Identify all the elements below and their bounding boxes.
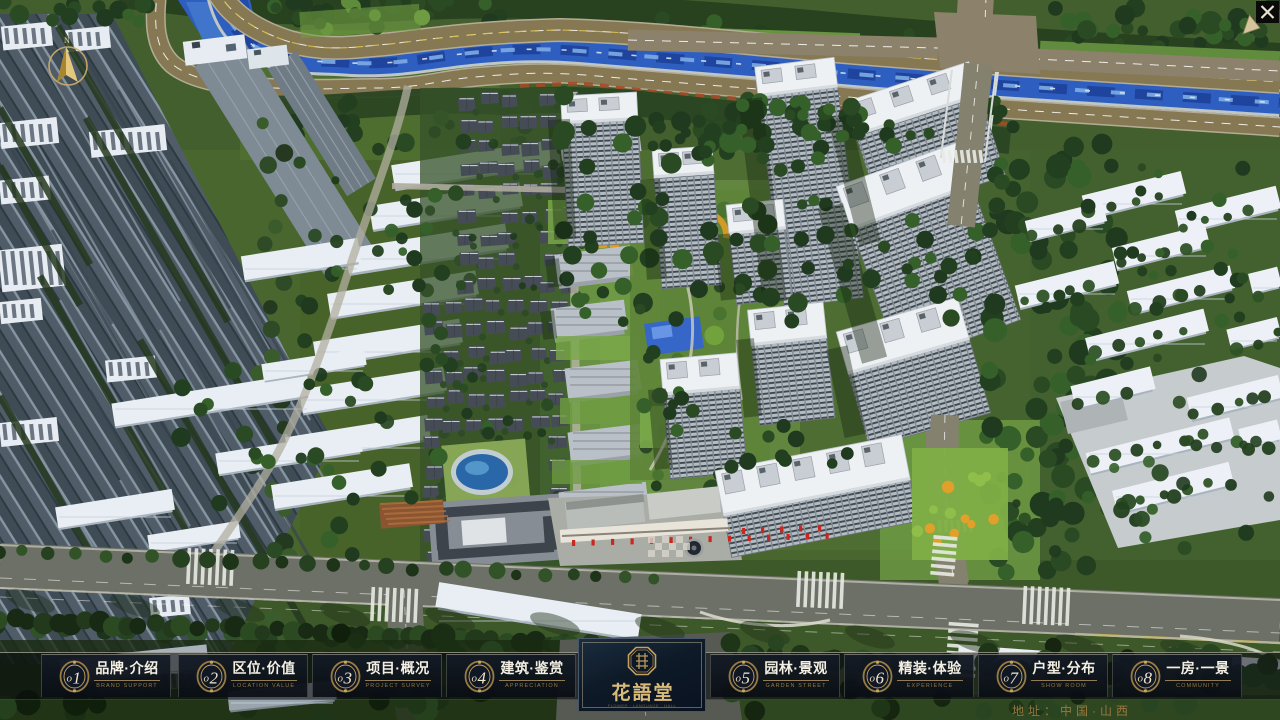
svg-text:8: 8 (1144, 669, 1153, 688)
svg-text:4: 4 (478, 669, 487, 688)
svg-text:2: 2 (210, 669, 219, 688)
svg-text:N: N (64, 36, 70, 45)
svg-text:5: 5 (742, 669, 751, 688)
svg-text:1: 1 (73, 669, 82, 688)
svg-text:6: 6 (876, 669, 885, 688)
svg-text:3: 3 (343, 669, 353, 688)
